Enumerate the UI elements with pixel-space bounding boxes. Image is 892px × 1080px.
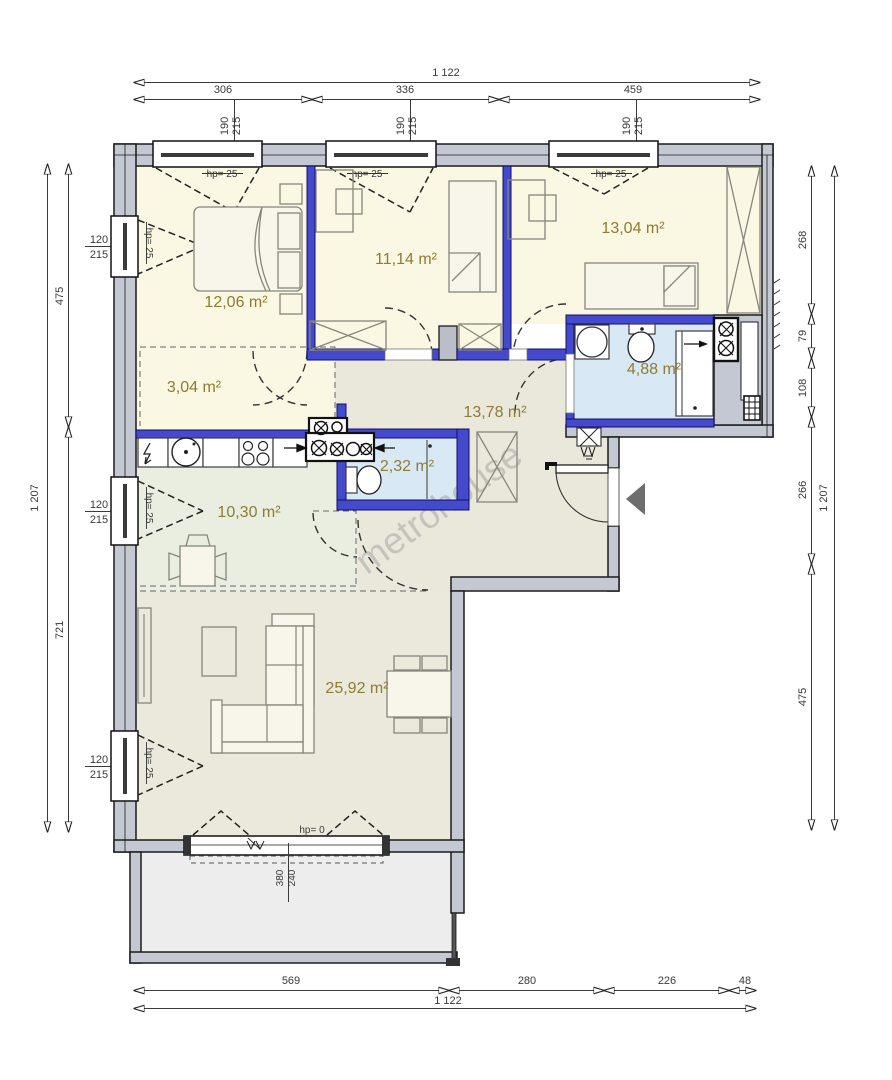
svg-text:215: 215 bbox=[90, 514, 108, 526]
svg-text:4,88 m²: 4,88 m² bbox=[627, 361, 682, 378]
svg-text:120: 120 bbox=[90, 499, 108, 511]
svg-text:336: 336 bbox=[396, 84, 414, 96]
svg-text:475: 475 bbox=[797, 688, 809, 706]
svg-text:3,04 m²: 3,04 m² bbox=[167, 379, 222, 396]
svg-text:266: 266 bbox=[797, 481, 809, 499]
svg-text:13,78 m²: 13,78 m² bbox=[463, 404, 527, 421]
svg-text:48: 48 bbox=[739, 975, 751, 987]
svg-text:1 207: 1 207 bbox=[818, 484, 830, 512]
svg-text:190: 190 bbox=[219, 117, 231, 135]
svg-text:hp= 25: hp= 25 bbox=[143, 228, 154, 259]
svg-text:268: 268 bbox=[797, 231, 809, 249]
svg-text:120: 120 bbox=[90, 234, 108, 246]
svg-text:459: 459 bbox=[624, 84, 642, 96]
svg-text:190: 190 bbox=[621, 117, 633, 135]
svg-text:215: 215 bbox=[231, 117, 243, 135]
svg-text:25,92 m²: 25,92 m² bbox=[325, 680, 389, 697]
svg-text:1 122: 1 122 bbox=[432, 67, 460, 79]
svg-text:226: 226 bbox=[658, 975, 676, 987]
svg-text:79: 79 bbox=[797, 330, 809, 342]
svg-text:hp= 25: hp= 25 bbox=[352, 169, 383, 180]
svg-text:120: 120 bbox=[90, 754, 108, 766]
svg-text:hp= 25: hp= 25 bbox=[143, 748, 154, 779]
svg-text:13,04 m²: 13,04 m² bbox=[601, 220, 665, 237]
svg-text:hp= 25: hp= 25 bbox=[143, 493, 154, 524]
svg-text:190: 190 bbox=[395, 117, 407, 135]
svg-text:380: 380 bbox=[275, 869, 286, 886]
svg-text:1 207: 1 207 bbox=[29, 484, 41, 512]
svg-text:215: 215 bbox=[90, 249, 108, 261]
svg-text:475: 475 bbox=[54, 287, 66, 305]
svg-text:215: 215 bbox=[407, 117, 419, 135]
svg-text:306: 306 bbox=[214, 84, 232, 96]
svg-text:721: 721 bbox=[54, 621, 66, 639]
svg-text:12,06 m²: 12,06 m² bbox=[204, 294, 268, 311]
svg-text:hp= 25: hp= 25 bbox=[207, 169, 238, 180]
svg-text:11,14 m²: 11,14 m² bbox=[375, 251, 438, 268]
svg-text:240: 240 bbox=[287, 869, 298, 886]
svg-text:hp= 0: hp= 0 bbox=[299, 825, 325, 836]
svg-text:108: 108 bbox=[797, 379, 809, 397]
svg-text:hp= 25: hp= 25 bbox=[596, 169, 627, 180]
svg-text:280: 280 bbox=[518, 975, 536, 987]
svg-text:1 122: 1 122 bbox=[434, 995, 462, 1007]
svg-text:10,30 m²: 10,30 m² bbox=[217, 504, 281, 521]
svg-text:215: 215 bbox=[633, 117, 645, 135]
svg-text:215: 215 bbox=[90, 769, 108, 781]
svg-text:569: 569 bbox=[282, 975, 300, 987]
svg-text:2,32 m²: 2,32 m² bbox=[380, 458, 435, 475]
